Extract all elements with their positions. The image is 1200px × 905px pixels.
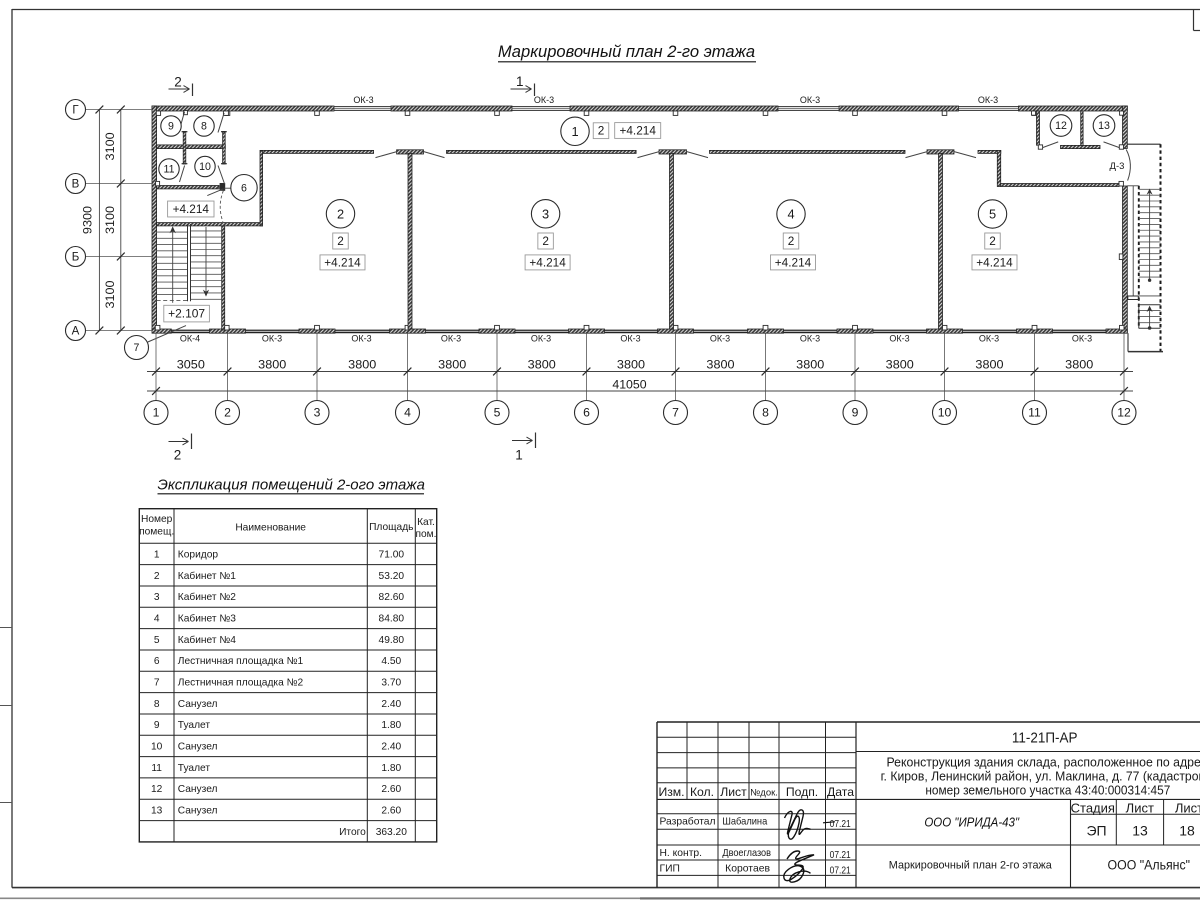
svg-text:8: 8 <box>154 699 160 710</box>
svg-text:363.20: 363.20 <box>376 827 407 838</box>
svg-text:5: 5 <box>154 635 160 646</box>
svg-text:1: 1 <box>516 74 524 89</box>
svg-text:41050: 41050 <box>612 378 647 392</box>
svg-text:Маркировочный план 2-го этажа: Маркировочный план 2-го этажа <box>889 859 1052 871</box>
svg-text:Реконструкция здания склада, р: Реконструкция здания склада, расположенн… <box>887 754 1200 769</box>
svg-text:+4.214: +4.214 <box>976 255 1013 269</box>
svg-text:6: 6 <box>241 182 247 194</box>
svg-text:Лист: Лист <box>1126 801 1154 816</box>
svg-text:3: 3 <box>542 206 549 221</box>
svg-text:7: 7 <box>154 678 160 689</box>
svg-text:3800: 3800 <box>886 357 914 371</box>
svg-text:ОК-3: ОК-3 <box>353 95 373 105</box>
svg-text:Наименование: Наименование <box>235 523 306 534</box>
svg-text:12: 12 <box>1117 406 1131 420</box>
svg-text:Площадь: Площадь <box>369 522 413 533</box>
svg-text:9: 9 <box>168 121 174 133</box>
svg-text:2: 2 <box>224 406 231 420</box>
svg-text:ГИП: ГИП <box>660 863 680 874</box>
svg-text:Лестничная площадка №2: Лестничная площадка №2 <box>178 678 304 689</box>
svg-text:3800: 3800 <box>528 357 556 371</box>
svg-text:6: 6 <box>583 406 590 420</box>
svg-text:3100: 3100 <box>103 206 117 234</box>
svg-text:ОК-3: ОК-3 <box>1072 334 1092 344</box>
svg-text:4.50: 4.50 <box>381 656 401 667</box>
svg-text:2: 2 <box>989 234 996 248</box>
svg-text:+2.107: +2.107 <box>168 307 205 321</box>
svg-text:2: 2 <box>154 571 160 582</box>
svg-text:2: 2 <box>598 124 605 138</box>
svg-text:Д-3: Д-3 <box>1110 161 1125 172</box>
svg-text:07.21: 07.21 <box>830 865 851 876</box>
svg-text:1: 1 <box>515 448 523 463</box>
svg-text:8: 8 <box>201 121 207 133</box>
svg-text:Стадия: Стадия <box>1071 801 1115 816</box>
svg-text:3: 3 <box>314 406 321 420</box>
svg-text:ООО "Альянс": ООО "Альянс" <box>1108 857 1191 872</box>
svg-text:3800: 3800 <box>348 357 376 371</box>
svg-text:07.21: 07.21 <box>830 850 851 861</box>
svg-text:3800: 3800 <box>258 357 286 371</box>
svg-text:4: 4 <box>404 406 411 420</box>
svg-text:11: 11 <box>164 164 175 176</box>
svg-text:ООО "ИРИДА-43": ООО "ИРИДА-43" <box>924 816 1019 830</box>
svg-text:11: 11 <box>1028 406 1041 420</box>
svg-text:82.60: 82.60 <box>379 592 405 603</box>
svg-text:г. Киров, Ленинский район, ул.: г. Киров, Ленинский район, ул. Маклина, … <box>881 769 1200 784</box>
svg-text:Туалет: Туалет <box>178 763 211 774</box>
svg-text:ОК-3: ОК-3 <box>441 334 461 344</box>
svg-text:2: 2 <box>337 234 344 248</box>
svg-text:53.20: 53.20 <box>379 571 405 582</box>
svg-text:Листов: Листов <box>1175 801 1200 816</box>
svg-text:3800: 3800 <box>706 357 734 371</box>
svg-text:Кабинет №4: Кабинет №4 <box>178 634 237 646</box>
svg-text:ОК-3: ОК-3 <box>800 95 820 105</box>
svg-text:18: 18 <box>1179 822 1195 838</box>
svg-text:1.80: 1.80 <box>381 763 401 774</box>
svg-text:1: 1 <box>571 124 578 139</box>
svg-text:2: 2 <box>542 234 549 248</box>
svg-text:Шабалина: Шабалина <box>722 816 767 828</box>
svg-text:ОК-3: ОК-3 <box>979 334 999 344</box>
svg-text:+4.214: +4.214 <box>173 202 210 216</box>
svg-text:10: 10 <box>938 406 952 420</box>
svg-text:+4.214: +4.214 <box>775 255 812 269</box>
svg-text:3800: 3800 <box>438 357 466 371</box>
svg-text:+4.214: +4.214 <box>619 124 656 138</box>
svg-text:12: 12 <box>1055 120 1067 132</box>
svg-text:Г: Г <box>72 105 79 117</box>
svg-text:1.80: 1.80 <box>381 720 401 731</box>
svg-text:ОК-3: ОК-3 <box>710 334 730 344</box>
svg-text:5: 5 <box>989 207 996 222</box>
svg-text:А: А <box>72 326 80 338</box>
svg-text:ОК-3: ОК-3 <box>889 334 909 344</box>
svg-text:7: 7 <box>134 342 140 354</box>
svg-text:ОК-3: ОК-3 <box>620 334 640 344</box>
svg-text:71.00: 71.00 <box>379 550 405 561</box>
svg-text:2.40: 2.40 <box>381 699 401 710</box>
svg-text:3100: 3100 <box>103 280 117 308</box>
svg-text:3.70: 3.70 <box>381 678 401 689</box>
svg-text:+4.214: +4.214 <box>324 255 361 269</box>
svg-text:Б: Б <box>72 252 80 264</box>
svg-text:Дата: Дата <box>827 785 854 799</box>
svg-text:Н. контр.: Н. контр. <box>660 848 703 859</box>
svg-text:Изм.: Изм. <box>658 785 684 799</box>
svg-text:84.80: 84.80 <box>379 614 405 625</box>
svg-text:2: 2 <box>174 74 182 89</box>
svg-text:№док.: №док. <box>750 787 778 798</box>
svg-text:Коротаев: Коротаев <box>725 862 770 874</box>
svg-text:12: 12 <box>151 784 163 795</box>
svg-text:49.80: 49.80 <box>379 635 405 646</box>
svg-text:1: 1 <box>154 550 160 561</box>
svg-text:13: 13 <box>1098 120 1110 132</box>
svg-text:10: 10 <box>151 742 163 753</box>
svg-text:Лист: Лист <box>720 785 747 799</box>
svg-text:номер земельного участка 43:40: номер земельного участка 43:40:000314:45… <box>925 783 1170 798</box>
svg-text:ОК-3: ОК-3 <box>262 334 282 344</box>
svg-text:1: 1 <box>153 406 160 420</box>
svg-text:3800: 3800 <box>1065 357 1093 371</box>
svg-text:2.40: 2.40 <box>381 742 401 753</box>
svg-text:+4.214: +4.214 <box>529 255 566 269</box>
svg-text:Кат.: Кат. <box>417 517 435 528</box>
svg-text:2: 2 <box>337 206 344 221</box>
svg-text:Санузел: Санузел <box>178 784 218 795</box>
svg-text:ОК-3: ОК-3 <box>351 334 371 344</box>
svg-text:Подп.: Подп. <box>786 785 818 799</box>
svg-text:3800: 3800 <box>796 357 824 371</box>
svg-text:2: 2 <box>174 448 182 463</box>
svg-text:Санузел: Санузел <box>178 806 218 817</box>
svg-text:2.60: 2.60 <box>381 806 401 817</box>
svg-text:07.21: 07.21 <box>830 819 851 830</box>
svg-text:7: 7 <box>672 406 679 420</box>
svg-text:Номер: Номер <box>141 514 173 525</box>
svg-text:Маркировочный план 2-го этажа: Маркировочный план 2-го этажа <box>498 42 755 61</box>
svg-text:9: 9 <box>154 720 160 731</box>
svg-text:Лестничная площадка №1: Лестничная площадка №1 <box>178 656 304 667</box>
svg-text:3800: 3800 <box>617 357 645 371</box>
svg-text:Кабинет №3: Кабинет №3 <box>178 613 237 625</box>
svg-text:5: 5 <box>494 406 501 420</box>
svg-text:10: 10 <box>199 161 211 173</box>
svg-text:Санузел: Санузел <box>178 742 218 753</box>
svg-text:ОК-4: ОК-4 <box>180 334 200 344</box>
svg-text:Санузел: Санузел <box>178 699 218 710</box>
svg-text:ОК-3: ОК-3 <box>800 334 820 344</box>
svg-text:6: 6 <box>154 656 160 667</box>
svg-text:Кабинет №1: Кабинет №1 <box>178 570 237 582</box>
svg-text:В: В <box>72 179 80 191</box>
svg-text:Туалет: Туалет <box>178 720 211 731</box>
svg-text:8: 8 <box>762 406 769 420</box>
svg-text:Итого: Итого <box>339 827 366 838</box>
svg-text:2.60: 2.60 <box>381 784 401 795</box>
svg-text:2: 2 <box>788 234 795 248</box>
svg-text:3050: 3050 <box>177 357 205 371</box>
svg-text:11-21П-АР: 11-21П-АР <box>1012 729 1078 746</box>
svg-text:ЭП: ЭП <box>1086 822 1106 838</box>
svg-text:4: 4 <box>154 614 160 625</box>
svg-text:ОК-3: ОК-3 <box>978 95 998 105</box>
svg-text:Двоеглазов: Двоеглазов <box>722 847 771 859</box>
svg-text:3800: 3800 <box>975 357 1003 371</box>
svg-text:3100: 3100 <box>103 132 117 160</box>
svg-text:9: 9 <box>852 406 859 420</box>
svg-text:ОК-3: ОК-3 <box>531 334 551 344</box>
svg-text:Кабинет №2: Кабинет №2 <box>178 591 237 603</box>
svg-text:Разработал: Разработал <box>660 816 716 828</box>
svg-text:Экспликация помещений 2-ого эт: Экспликация помещений 2-ого этажа <box>157 476 425 493</box>
svg-text:пом.: пом. <box>415 529 436 540</box>
svg-text:Кол.: Кол. <box>690 785 714 799</box>
svg-text:11: 11 <box>151 763 162 774</box>
svg-text:Коридор: Коридор <box>178 550 219 561</box>
svg-text:9300: 9300 <box>81 206 95 234</box>
svg-text:4: 4 <box>787 207 794 222</box>
svg-text:ОК-3: ОК-3 <box>534 95 554 105</box>
svg-text:13: 13 <box>151 806 163 817</box>
svg-text:помещ.: помещ. <box>139 527 174 538</box>
svg-text:3: 3 <box>154 592 160 603</box>
svg-text:13: 13 <box>1132 822 1148 838</box>
